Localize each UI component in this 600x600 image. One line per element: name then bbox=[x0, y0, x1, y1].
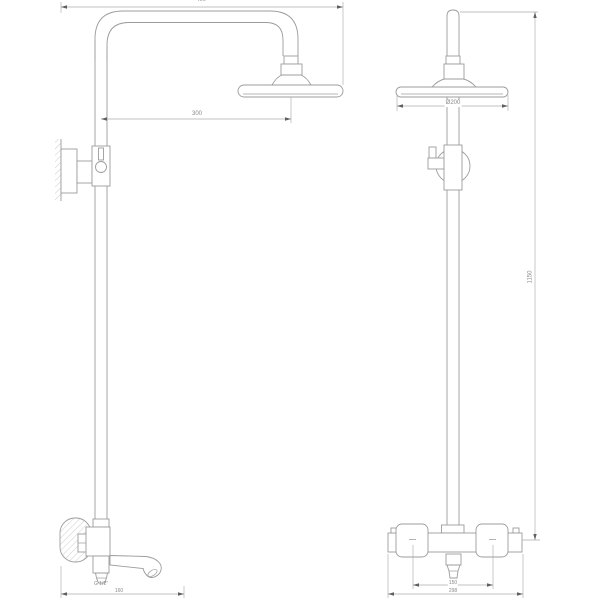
aerator-side bbox=[447, 565, 460, 578]
shower-head-side bbox=[396, 56, 508, 97]
dim-label-overall-width-front: 400 bbox=[196, 0, 206, 4]
mixer-front bbox=[60, 518, 110, 583]
technical-drawing: 400 300 G 1/2" 160 Ø200 150 298 1150 bbox=[0, 0, 600, 600]
wall-bracket-front bbox=[55, 139, 110, 201]
front-view bbox=[55, 11, 343, 583]
dim-label-overall-height: 1150 bbox=[528, 271, 535, 284]
mixer-handle-right bbox=[476, 524, 508, 557]
mixer-handle-left bbox=[396, 524, 428, 557]
riser-pipe-front bbox=[95, 40, 107, 520]
diverter-lever bbox=[429, 147, 436, 158]
mixer-side bbox=[388, 524, 522, 578]
diverter-knob-front bbox=[96, 162, 107, 173]
shower-head-front bbox=[238, 56, 343, 97]
side-dimensions bbox=[388, 12, 540, 598]
wall-hatch bbox=[55, 139, 61, 201]
shower-arm-front bbox=[95, 11, 298, 60]
side-view bbox=[388, 10, 522, 578]
dim-label-inlet-spacing: 150 bbox=[448, 580, 458, 586]
dim-label-head-diameter: Ø200 bbox=[445, 100, 462, 107]
dim-label-spout-reach: 160 bbox=[115, 588, 123, 594]
slider-holder-side bbox=[428, 145, 470, 190]
dim-label-overall-width-side: 298 bbox=[449, 588, 457, 594]
label-spout-thread: G 1/2" bbox=[94, 581, 108, 587]
drawing-canvas bbox=[0, 0, 600, 600]
dim-label-head-offset: 300 bbox=[192, 111, 202, 118]
tub-spout bbox=[110, 556, 161, 579]
